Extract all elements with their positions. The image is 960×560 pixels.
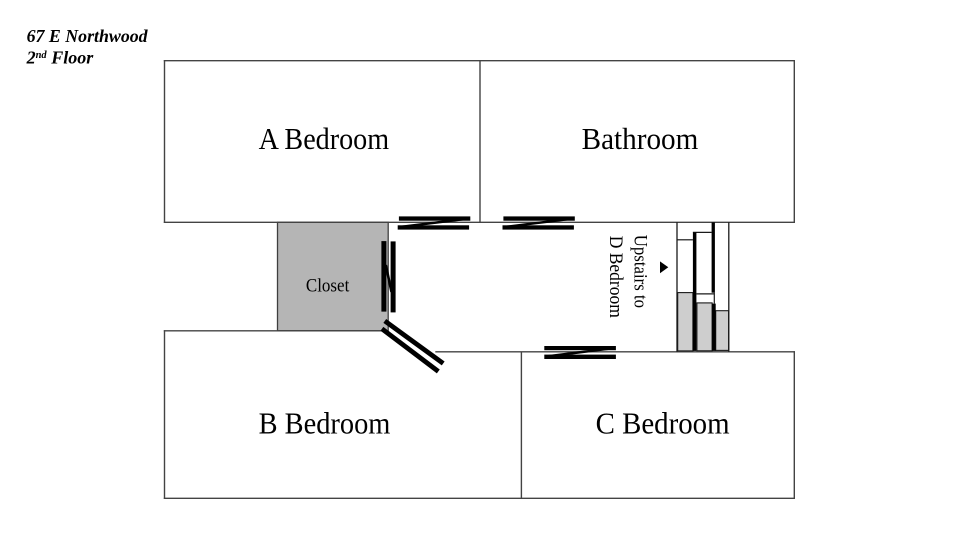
svg-text:D Bedroom: D Bedroom <box>605 236 626 318</box>
svg-text:Bathroom: Bathroom <box>582 121 699 156</box>
svg-text:C Bedroom: C Bedroom <box>596 406 730 441</box>
svg-text:67 E Northwood: 67 E Northwood <box>27 26 149 46</box>
svg-text:Upstairs to: Upstairs to <box>630 235 651 308</box>
svg-text:Closet: Closet <box>306 276 350 297</box>
svg-text:B Bedroom: B Bedroom <box>259 406 391 441</box>
svg-text:A Bedroom: A Bedroom <box>259 121 390 156</box>
